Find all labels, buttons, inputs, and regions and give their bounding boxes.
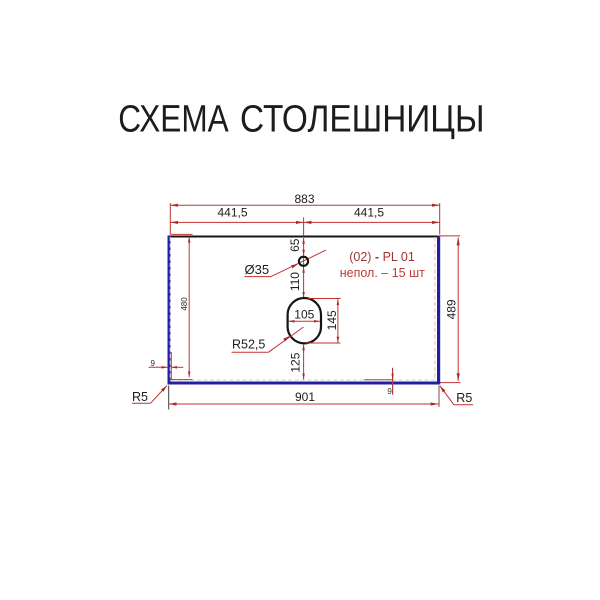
svg-text:883: 883 bbox=[294, 192, 314, 206]
svg-text:125: 125 bbox=[289, 352, 303, 372]
svg-text:65: 65 bbox=[288, 238, 302, 252]
svg-text:441,5: 441,5 bbox=[354, 206, 384, 220]
svg-text:901: 901 bbox=[295, 390, 315, 404]
svg-text:R5: R5 bbox=[456, 391, 472, 405]
svg-text:145: 145 bbox=[325, 310, 339, 330]
svg-text:9: 9 bbox=[387, 387, 392, 396]
svg-text:489: 489 bbox=[444, 299, 458, 319]
svg-text:105: 105 bbox=[294, 307, 314, 321]
svg-text:Ø35: Ø35 bbox=[245, 262, 270, 277]
svg-text:R5: R5 bbox=[132, 390, 148, 404]
svg-text:непол. – 15 шт: непол. – 15 шт bbox=[340, 266, 425, 280]
svg-text:(02) - PL 01: (02) - PL 01 bbox=[349, 250, 415, 264]
svg-text:441,5: 441,5 bbox=[217, 206, 247, 220]
svg-text:110: 110 bbox=[288, 272, 302, 291]
svg-text:R52,5: R52,5 bbox=[232, 338, 265, 352]
svg-text:9: 9 bbox=[150, 359, 155, 368]
svg-text:СХЕМА: СХЕМА bbox=[118, 98, 229, 141]
svg-text:СТОЛЕШНИЦЫ: СТОЛЕШНИЦЫ bbox=[240, 98, 485, 141]
svg-text:480: 480 bbox=[180, 297, 189, 311]
